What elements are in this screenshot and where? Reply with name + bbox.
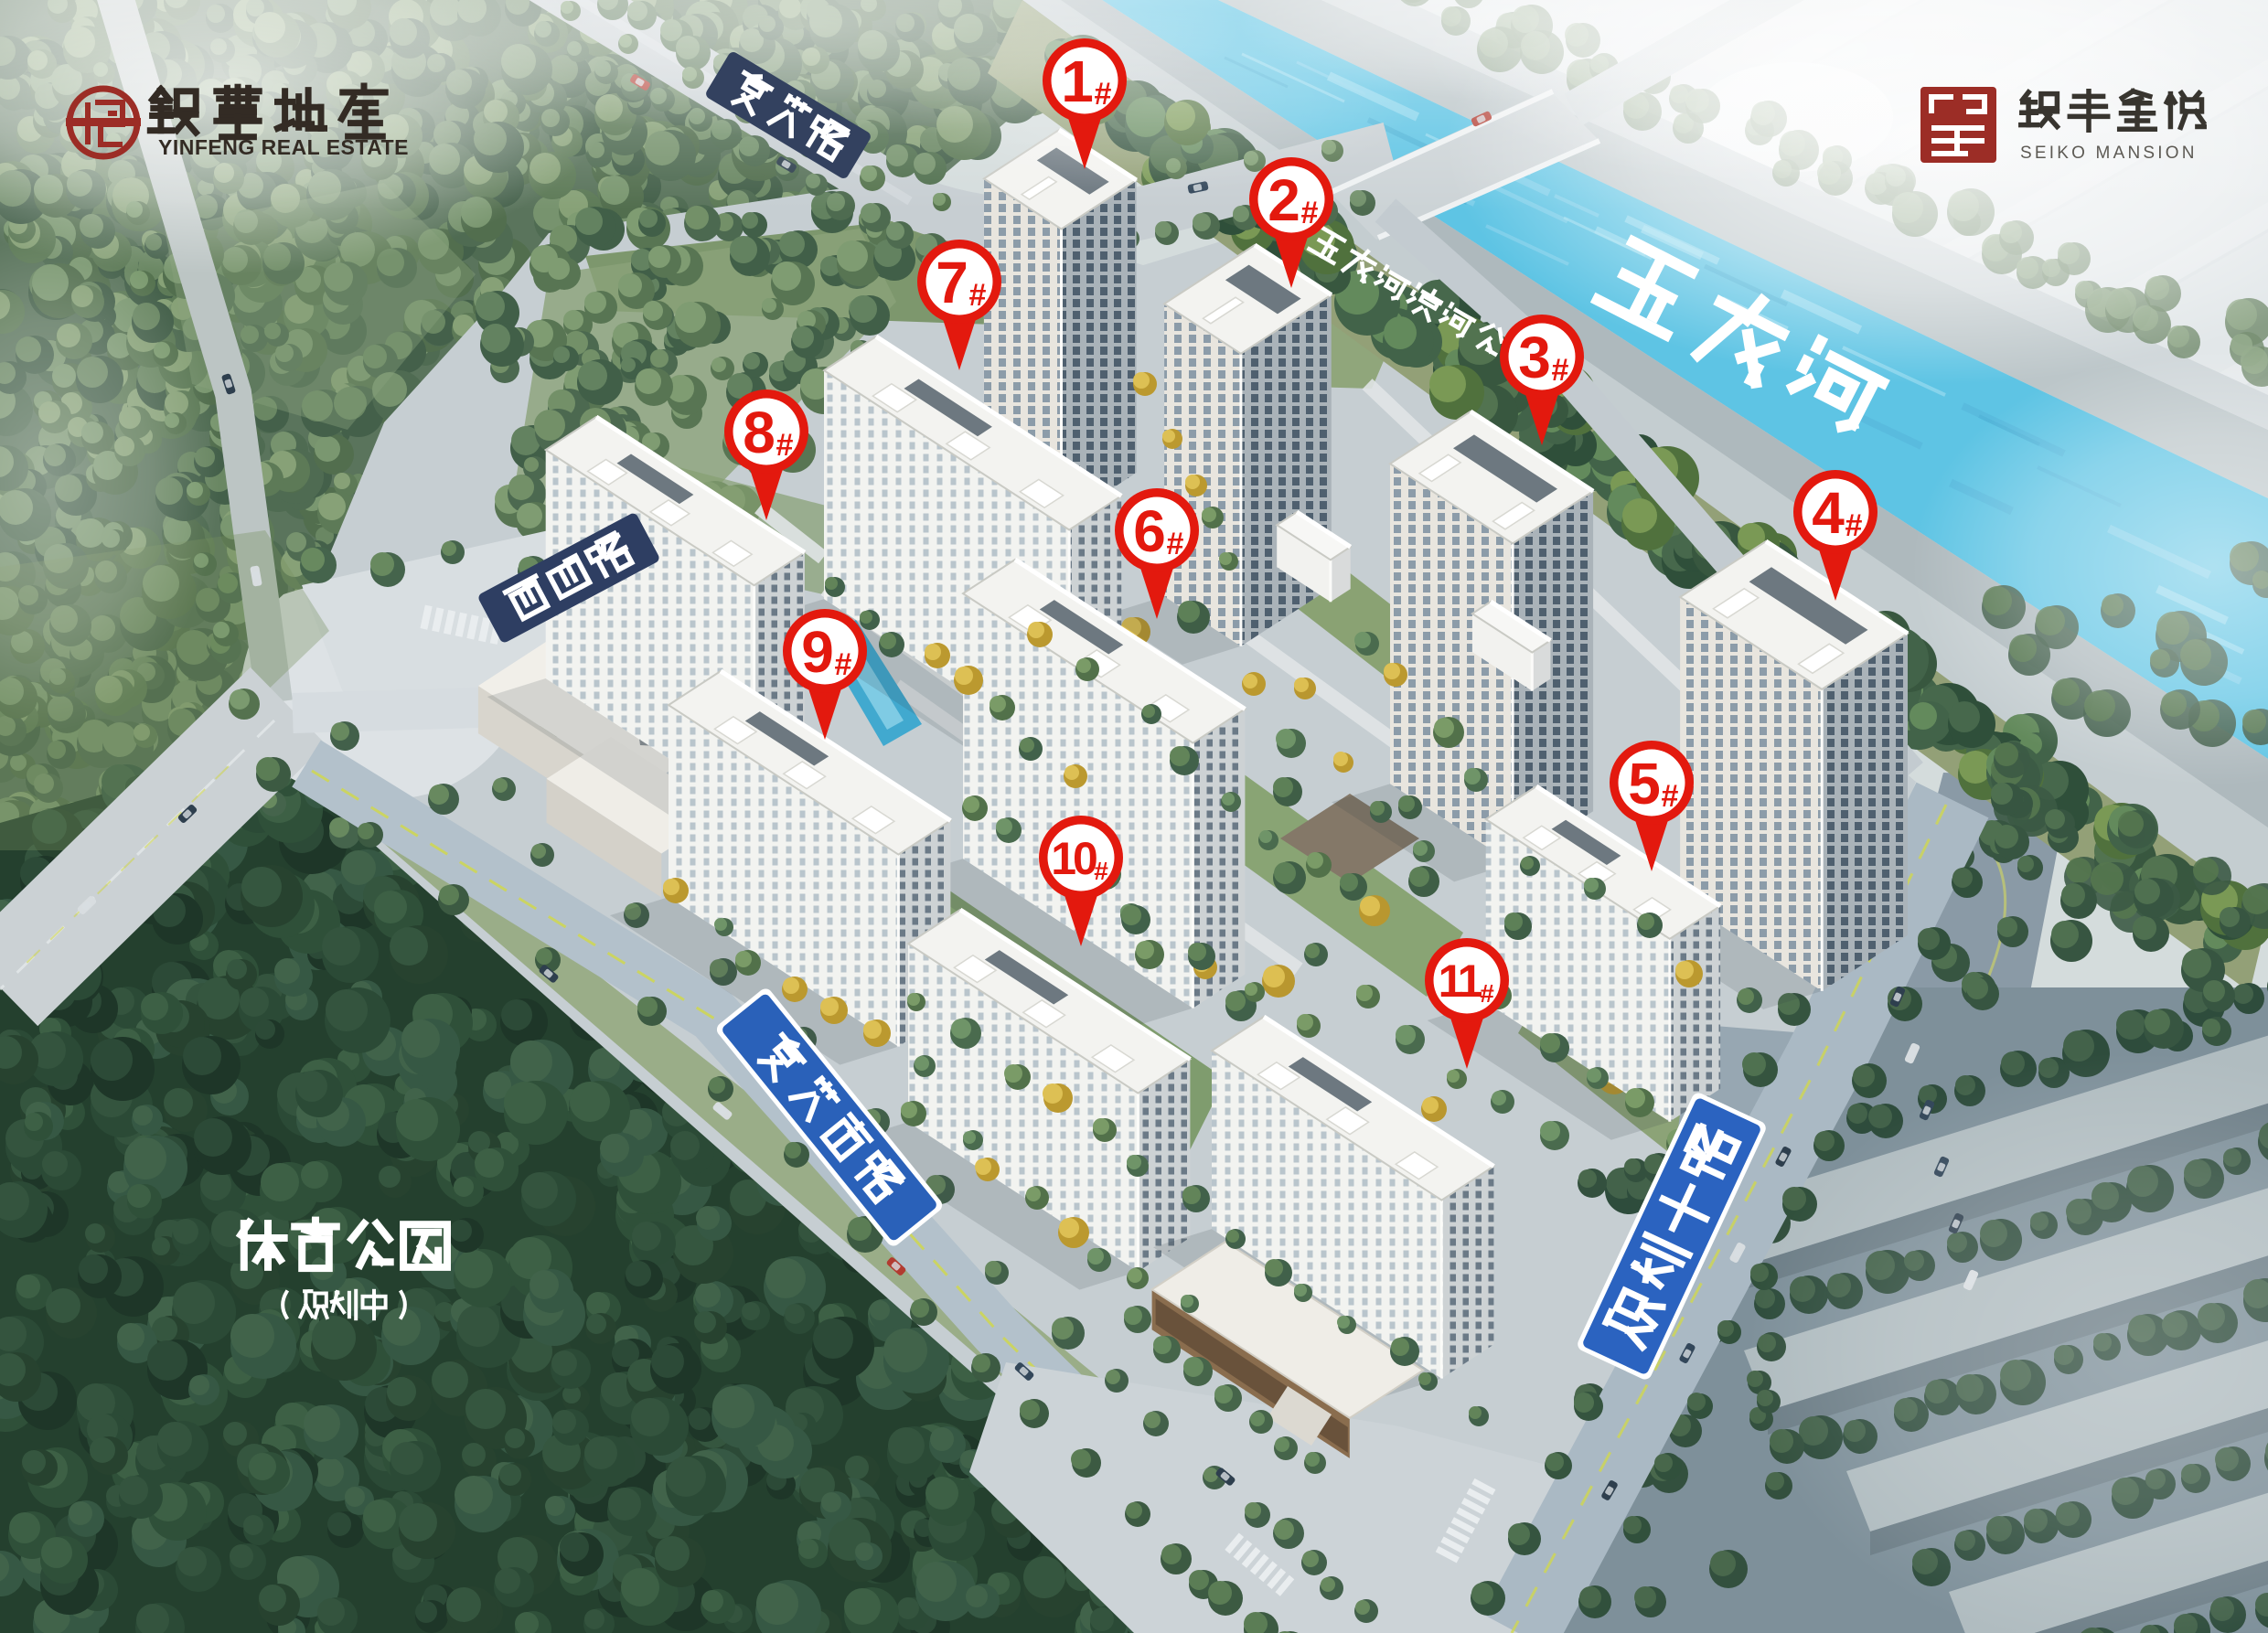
- svg-text:1: 1: [1061, 48, 1094, 114]
- svg-text:2: 2: [1268, 167, 1300, 233]
- svg-text:6: 6: [1133, 498, 1166, 564]
- svg-text:#: #: [1480, 979, 1494, 1008]
- svg-text:#: #: [1094, 857, 1108, 885]
- svg-text:#: #: [1167, 527, 1184, 561]
- svg-text:11: 11: [1439, 955, 1482, 1007]
- svg-text:7: 7: [936, 250, 968, 315]
- svg-text:#: #: [1662, 779, 1679, 814]
- svg-text:8: 8: [743, 400, 776, 465]
- svg-text:3: 3: [1518, 325, 1551, 390]
- svg-text:#: #: [1845, 508, 1863, 543]
- svg-text:#: #: [1301, 196, 1319, 230]
- svg-text:#: #: [1095, 77, 1112, 112]
- svg-text:5: 5: [1628, 751, 1661, 816]
- svg-text:4: 4: [1812, 480, 1845, 546]
- svg-text:SEIKO MANSION: SEIKO MANSION: [2020, 144, 2198, 163]
- svg-text:10: 10: [1051, 833, 1097, 884]
- svg-text:#: #: [776, 428, 794, 463]
- svg-text:#: #: [835, 647, 852, 682]
- svg-text:#: #: [969, 278, 987, 313]
- svg-text:9: 9: [801, 619, 834, 685]
- svg-text:#: #: [1552, 353, 1569, 388]
- svg-text:YINFENG REAL ESTATE: YINFENG REAL ESTATE: [158, 135, 409, 159]
